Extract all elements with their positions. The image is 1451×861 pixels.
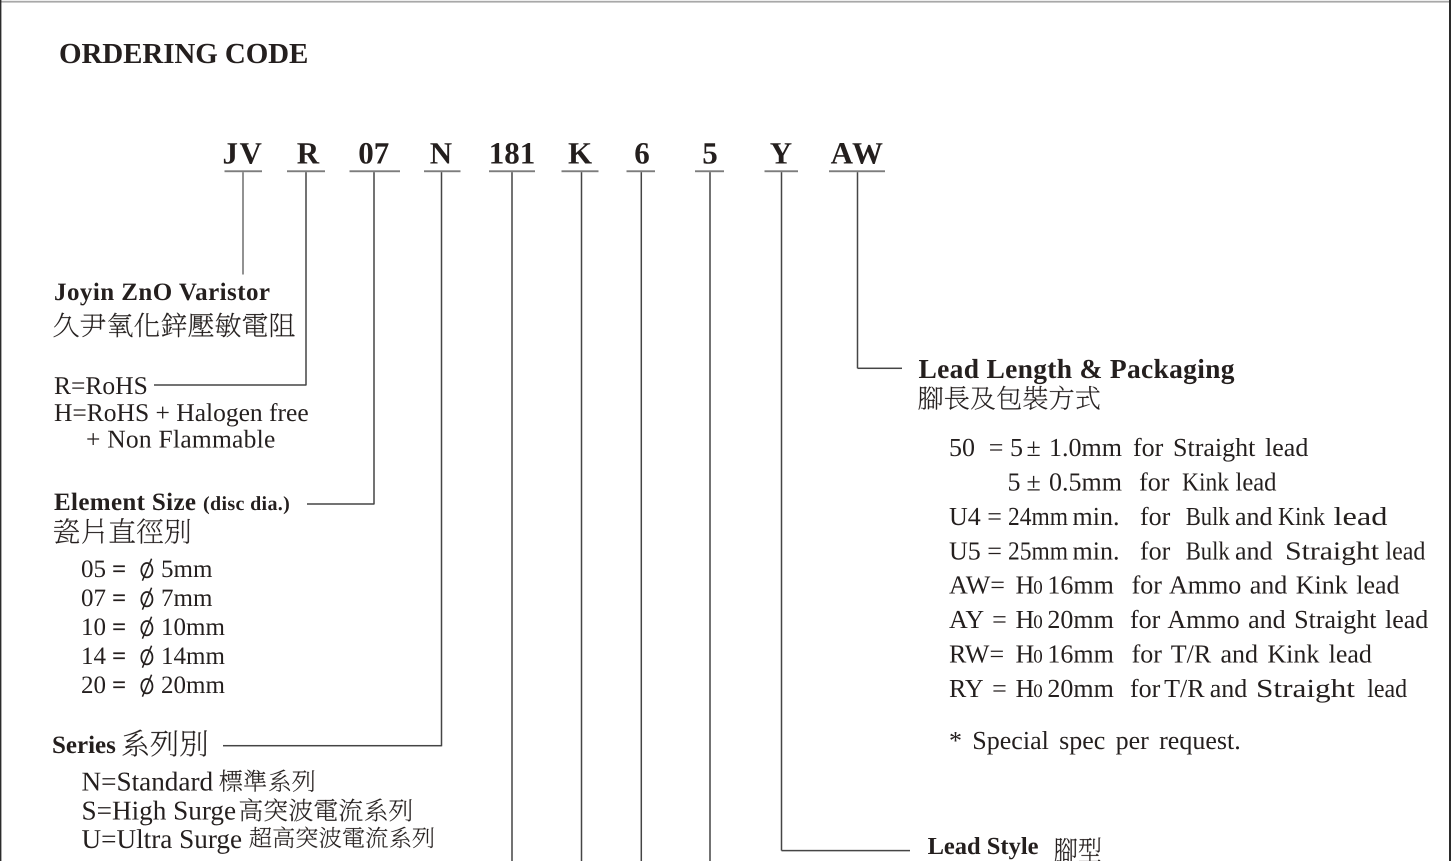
svg-text:Element Size (disc dia.): Element Size (disc dia.) <box>54 489 290 516</box>
svg-text:AY=H020mmfor Ammo and Straight: AY=H020mmfor Ammo and Straight lead <box>949 605 1428 634</box>
svg-text:07: 07 <box>358 136 389 171</box>
svg-text:RY=H020mmforT/RandStraightlead: RY=H020mmforT/RandStraightlead <box>949 674 1407 703</box>
svg-text:181: 181 <box>489 136 536 171</box>
svg-text:ORDERING CODE: ORDERING CODE <box>59 38 308 70</box>
svg-text:Lead Length & Packaging: Lead Length & Packaging <box>919 353 1235 385</box>
svg-text:U4=24mmmin.forBulkandKinklead: U4=24mmmin.forBulkandKinklead <box>949 502 1388 531</box>
svg-text:U5=25mmmin.forBulkandStraightl: U5=25mmmin.forBulkandStraightlead <box>949 536 1425 565</box>
svg-text:Joyin ZnO Varistor: Joyin ZnO Varistor <box>54 279 270 306</box>
svg-text:5: 5 <box>702 136 718 171</box>
svg-text:* Special spec per request.: * Special spec per request. <box>949 726 1241 755</box>
svg-text:AW=H016mmfor Ammo and Kink lea: AW=H016mmfor Ammo and Kink lead <box>949 571 1400 600</box>
svg-text:H=RoHS + Halogen free: H=RoHS + Halogen free <box>54 398 309 427</box>
svg-text:AW: AW <box>831 136 886 171</box>
svg-text:Y: Y <box>770 136 792 171</box>
svg-text:Lead Style: Lead Style <box>928 833 1039 860</box>
svg-text:N: N <box>430 136 452 171</box>
svg-text:6: 6 <box>634 136 650 171</box>
svg-text:S=High Surge: S=High Surge <box>82 796 237 826</box>
svg-text:K: K <box>568 136 592 171</box>
svg-text:U=Ultra Surge: U=Ultra Surge <box>82 824 243 854</box>
svg-text:JV: JV <box>223 136 264 171</box>
svg-text:R=RoHS: R=RoHS <box>54 371 148 400</box>
svg-text:+ Non Flammable: + Non Flammable <box>86 425 276 454</box>
svg-text:R: R <box>297 136 320 171</box>
svg-text:N=Standard: N=Standard <box>82 767 214 797</box>
svg-text:Series: Series <box>52 732 116 759</box>
